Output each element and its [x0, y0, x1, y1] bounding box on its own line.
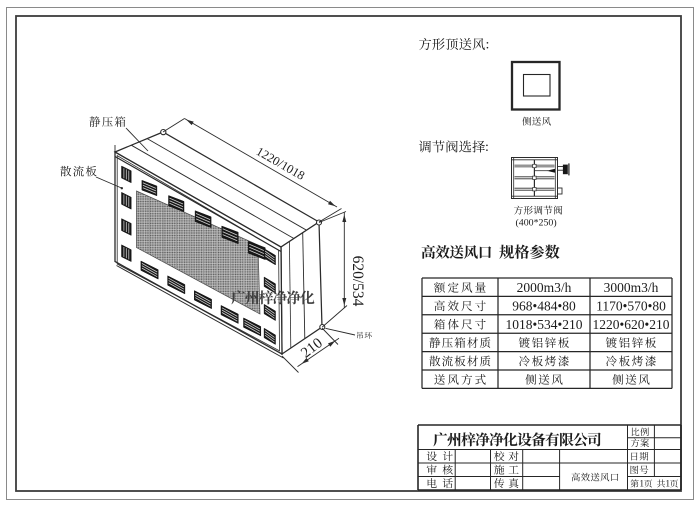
- svg-text::: :: [485, 140, 489, 155]
- svg-text:1: 1: [639, 480, 644, 490]
- svg-text:1170•570•80: 1170•570•80: [596, 298, 666, 313]
- svg-text:(400*250): (400*250): [516, 217, 557, 228]
- svg-text::: :: [486, 38, 490, 53]
- svg-text:1: 1: [665, 480, 670, 490]
- svg-text:3000m3/h: 3000m3/h: [604, 280, 659, 295]
- svg-text:1220•620•210: 1220•620•210: [593, 317, 670, 332]
- svg-text:1018•534•210: 1018•534•210: [506, 317, 583, 332]
- svg-text:2000m3/h: 2000m3/h: [517, 280, 572, 295]
- svg-text:620/534: 620/534: [349, 256, 366, 307]
- svg-text:968•484•80: 968•484•80: [512, 298, 576, 313]
